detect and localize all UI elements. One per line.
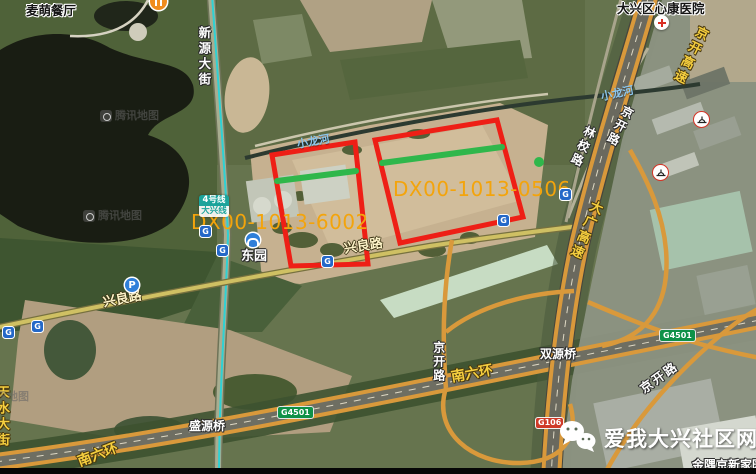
- metro-icon: G: [322, 256, 333, 267]
- tencent-map-logo-icon: [100, 110, 112, 122]
- overpass-icon: [693, 111, 710, 128]
- metro-icon: G: [217, 245, 228, 256]
- road-label-jingkai-mid: 京开路: [431, 341, 445, 383]
- overpass-icon: [652, 164, 669, 181]
- expressway-badge-g4501-west: G4501: [278, 407, 313, 418]
- hospital-icon: [654, 15, 669, 30]
- station-label-dongyuan: 东园: [241, 250, 267, 265]
- metro-icon: G: [3, 327, 14, 338]
- metro-daxing-line-name: 大兴线: [199, 206, 229, 217]
- metro-line4-badge: 4号线 大兴线: [199, 195, 229, 217]
- bridge-label-shengyuan: 盛源桥: [189, 420, 225, 434]
- metro-icon: G: [32, 321, 43, 332]
- bottom-letterbox-bar: [0, 468, 756, 474]
- expressway-badge-g4501-east: G4501: [660, 330, 695, 341]
- metro-entrance-icon: [246, 233, 260, 247]
- parcel-marker-dot: [534, 157, 544, 167]
- satellite-map[interactable]: 麦萌餐厅 大兴区心康医院 新源大街 京开高速 京开路 林校路 大广高速 天水大街…: [0, 0, 756, 474]
- metro-icon: G: [560, 189, 571, 200]
- restaurant-label: 麦萌餐厅: [26, 4, 76, 18]
- map-watermark: 腾讯地图: [100, 110, 159, 123]
- site-branding: 爱我大兴社区网: [604, 427, 756, 451]
- road-label-xinyuan-street: 新源大街: [196, 26, 210, 88]
- metro-icon: G: [200, 226, 211, 237]
- wechat-icon: [558, 419, 598, 459]
- metro-line4-name: 4号线: [199, 195, 229, 206]
- tencent-map-logo-icon: [83, 210, 95, 222]
- map-watermark: 腾讯地图: [0, 391, 29, 404]
- bridge-label-shuangyuan: 双源桥: [540, 348, 576, 362]
- map-watermark: 腾讯地图: [83, 210, 142, 223]
- parking-icon: P: [125, 278, 139, 292]
- metro-icon: G: [498, 215, 509, 226]
- parcel-east-label: DX00-1013-0506: [393, 178, 571, 201]
